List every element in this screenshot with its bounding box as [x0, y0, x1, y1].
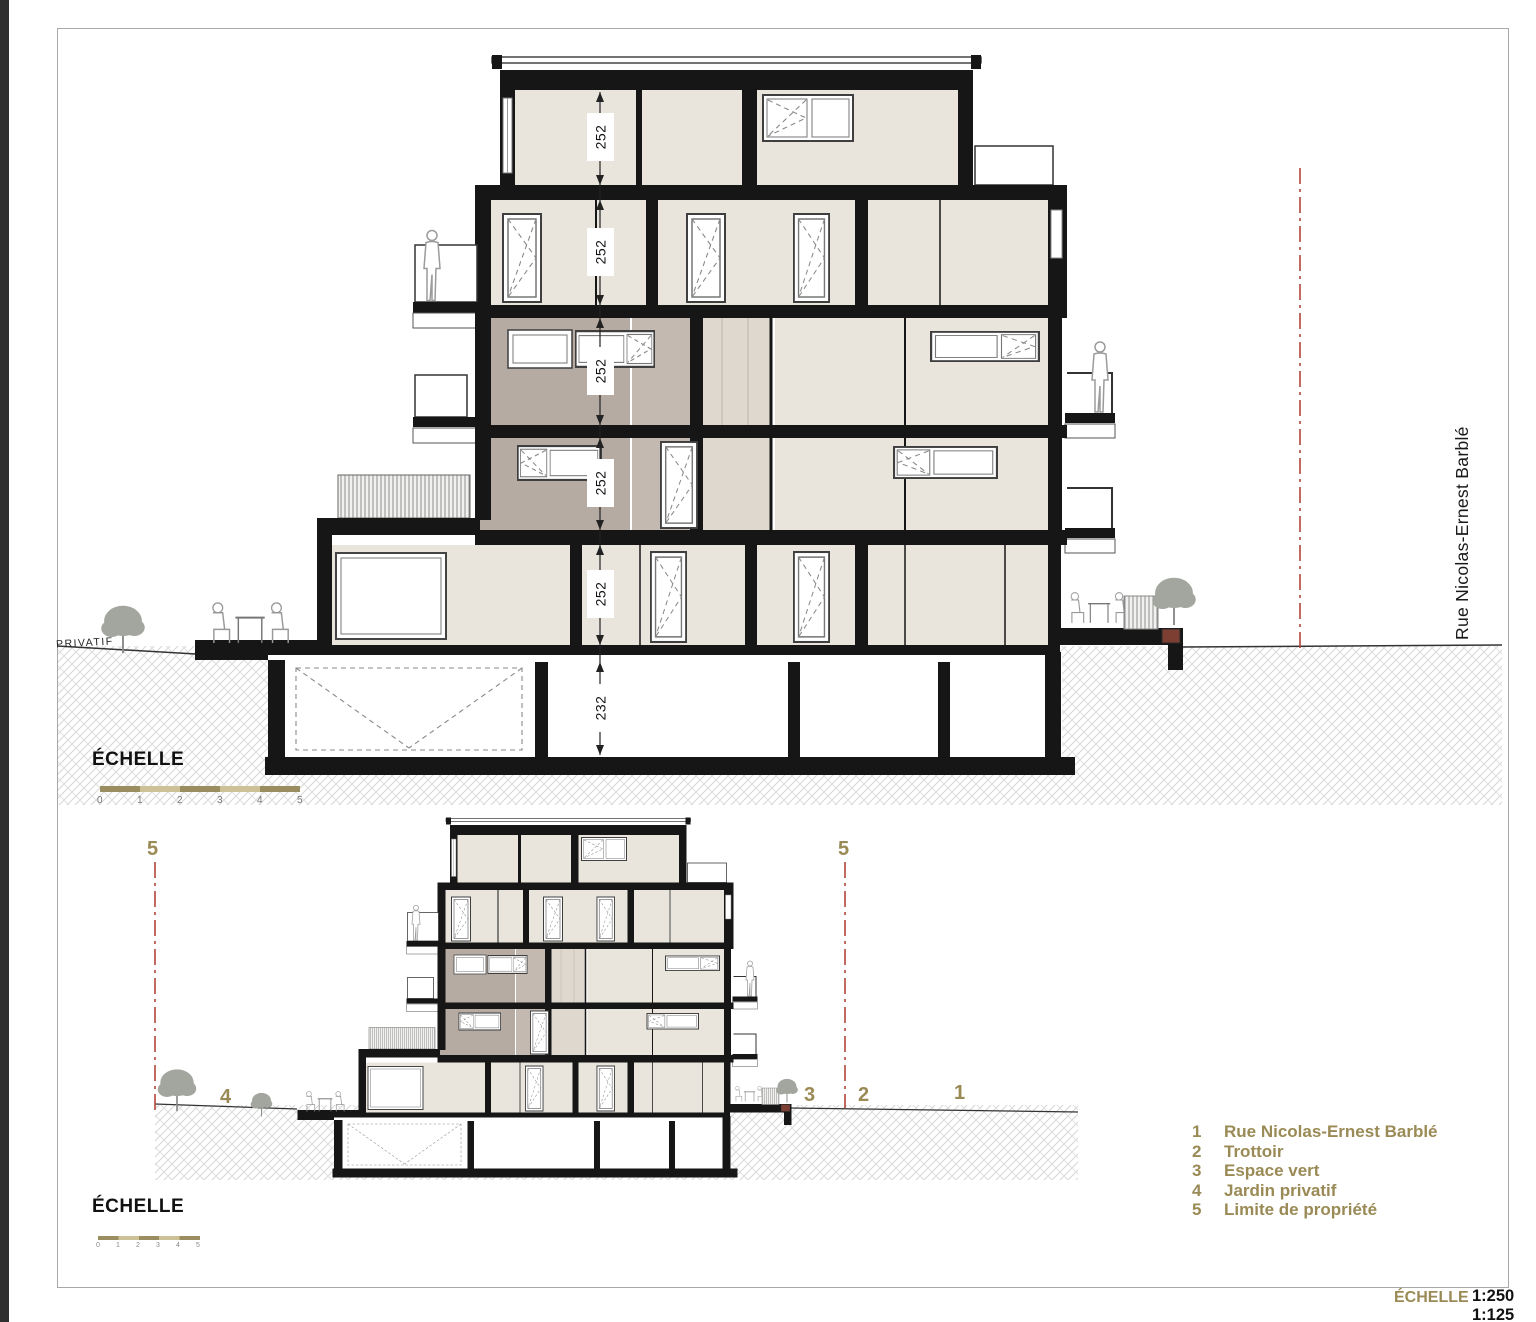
- sidewalk-marker: 2: [858, 1084, 869, 1107]
- legend-label: Trottoir: [1224, 1142, 1284, 1162]
- scale-tick: 0: [96, 1242, 100, 1249]
- legend-label: Limite de propriété: [1224, 1200, 1377, 1220]
- scale-tick: 1: [116, 1242, 120, 1249]
- footer-scale-2: 1:125: [1472, 1306, 1514, 1322]
- footer-scale-1: 1:250: [1472, 1287, 1514, 1306]
- legend-row: 1Rue Nicolas-Ernest Barblé: [1192, 1122, 1438, 1142]
- scale-tick: 3: [156, 1242, 160, 1249]
- drawing-sheet: 252 252 252 252 252 232 PRIVATIF Rue Nic…: [0, 0, 1536, 1322]
- dimension-label: 232: [587, 684, 614, 732]
- legend-label: Jardin privatif: [1224, 1181, 1336, 1201]
- legend: 1Rue Nicolas-Ernest Barblé 2Trottoir 3Es…: [1192, 1122, 1438, 1220]
- scale-tick: 4: [257, 795, 263, 806]
- window-edge-bar: [0, 0, 9, 1322]
- legend-row: 3Espace vert: [1192, 1161, 1438, 1181]
- scale-tick: 4: [176, 1242, 180, 1249]
- legend-num: 1: [1192, 1122, 1224, 1142]
- legend-label: Espace vert: [1224, 1161, 1319, 1181]
- scale-tick: 2: [177, 795, 183, 806]
- scale-tick: 2: [136, 1242, 140, 1249]
- dimension-label: 252: [587, 459, 614, 507]
- dimension-label: 252: [587, 228, 614, 276]
- footer-scale-values: 1:250 1:125: [1472, 1287, 1514, 1322]
- green-space-marker: 3: [804, 1084, 815, 1107]
- legend-num: 3: [1192, 1161, 1224, 1181]
- legend-label: Rue Nicolas-Ernest Barblé: [1224, 1122, 1438, 1142]
- scale-tick: 1: [137, 795, 143, 806]
- street-marker: 1: [954, 1082, 965, 1105]
- legend-num: 5: [1192, 1200, 1224, 1220]
- scale-heading-upper: ÉCHELLE: [92, 749, 184, 771]
- scale-tick: 5: [297, 795, 303, 806]
- scale-bar-upper: [100, 786, 300, 792]
- legend-row: 5Limite de propriété: [1192, 1200, 1438, 1220]
- dimension-label: 252: [587, 347, 614, 395]
- sheet-border: [57, 28, 1509, 1288]
- legend-row: 2Trottoir: [1192, 1142, 1438, 1162]
- footer-scale-heading: ÉCHELLE: [1394, 1289, 1469, 1307]
- dimension-label: 252: [587, 113, 614, 161]
- dimension-label: 252: [587, 570, 614, 618]
- scale-heading-lower: ÉCHELLE: [92, 1196, 184, 1218]
- legend-row: 4Jardin privatif: [1192, 1181, 1438, 1201]
- legend-num: 4: [1192, 1181, 1224, 1201]
- scale-tick: 0: [97, 795, 103, 806]
- street-name-label: Rue Nicolas-Ernest Barblé: [1452, 426, 1473, 640]
- limit-marker-right: 5: [838, 838, 849, 861]
- legend-num: 2: [1192, 1142, 1224, 1162]
- garden-marker: 4: [220, 1086, 231, 1109]
- scale-tick: 5: [196, 1242, 200, 1249]
- limit-marker-left: 5: [147, 838, 158, 861]
- scale-tick: 3: [217, 795, 223, 806]
- scale-bar-lower: [98, 1236, 200, 1240]
